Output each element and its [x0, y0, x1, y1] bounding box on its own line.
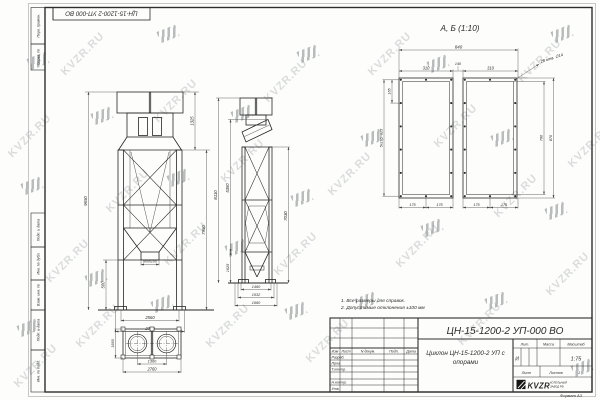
row-label-razrab: Разраб. [332, 356, 345, 360]
front-view-dim-labels: 9650 500 1325 7950 800х100 2560 2760 [83, 116, 206, 331]
dimension-label: 840 [455, 44, 463, 49]
mass-label: Масса [543, 343, 554, 347]
side-view [228, 98, 288, 283]
scale-value: 1:75 [571, 357, 583, 363]
side-view-dim-labels: 8110 5350 1625 7030 1460 1532 1660 [213, 183, 288, 305]
format-note: Формат А3 [560, 393, 583, 398]
row-label-nkontr: Н.контр. [332, 381, 347, 385]
dimension-label: 800х100 [143, 260, 157, 264]
dimension-label: 7950 [201, 225, 206, 235]
margin-label: Инв. № дубл. [37, 252, 41, 274]
logo-sub1: КОТЕЛЬНЫЙ [550, 381, 567, 385]
row-label-tkontr: Т.контр. [332, 368, 347, 372]
drawing-title-line1: Циклон ЦН-15-1200-2 УП с [426, 350, 505, 357]
sheets-value: 1 [578, 370, 580, 375]
doc-number: ЦН-15-1200-2 УП-000 ВО [447, 326, 564, 337]
col-header-list: Лист [340, 350, 350, 354]
kvzr-logo: KVZR КОТЕЛЬНЫЙ ЗАВОД РФ [517, 380, 567, 391]
detail-view-dimensions [383, 49, 556, 209]
note-line: 2. Допустимые отклонения ±100 мм [340, 305, 425, 311]
detail-view: А, Б (1:10) [379, 24, 564, 209]
dimension-label: 7030 [283, 211, 288, 221]
col-header-doc: N докум. [361, 350, 376, 354]
dimension-label: 175 [409, 203, 416, 207]
sheet-label: Лист [521, 371, 532, 375]
margin-label: Подп. и дата [37, 319, 41, 342]
detail-view-title: А, Б (1:10) [439, 24, 479, 33]
dimension-label: 870 [549, 134, 553, 141]
dimension-label: 175 [501, 203, 508, 207]
title-block: ЦН-15-1200-2 УП-000 ВО Циклон ЦН-15-1200… [330, 318, 592, 398]
margin-label: Подп. и дата [37, 219, 41, 242]
margin-label: Взам. инв. № [37, 284, 41, 306]
sheets-label: Листов [548, 371, 563, 375]
dimension-label: 1460 [252, 285, 261, 289]
margin-label: Справ. № [37, 49, 41, 65]
dimension-label: 1532 [252, 293, 261, 297]
detail-view-dim-labels: 840 310 140 310 28 отв. ∅14 165 5х165=82… [379, 44, 564, 207]
col-header-izm: Изм [332, 350, 339, 354]
logo-sub2: ЗАВОД РФ [550, 384, 565, 388]
dimension-label: 500 [100, 281, 105, 289]
engineering-drawing: { "watermark": { "text": "KVZR.RU" }, "s… [0, 0, 600, 400]
col-header-data: Дата [405, 350, 415, 354]
bolt-holes [400, 79, 517, 198]
drawing-canvas: Перв. примен. Справ. № Подп. и дата Инв.… [0, 0, 600, 400]
holes-callout: 28 отв. ∅14 [539, 52, 564, 65]
row-label-utv: Утв. [332, 387, 340, 391]
dimension-label: 1325 [189, 116, 194, 126]
dimension-label: 175 [473, 203, 480, 207]
dimension-label: 1660 [111, 338, 115, 347]
margin-label: Перв. примен. [37, 14, 41, 38]
logo-name: KVZR [528, 381, 550, 390]
dimension-label: 790 [539, 134, 543, 141]
plan-view [121, 327, 181, 359]
notes: 1. Все размеры для справок. 2. Допустимы… [340, 298, 425, 311]
lit-label: Лит. [520, 343, 530, 347]
front-view [98, 92, 214, 310]
dimension-label: 175 [436, 203, 443, 207]
row-label-prov: Пров. [332, 362, 341, 366]
margin-labels: Перв. примен. Справ. № Подп. и дата Инв.… [37, 14, 41, 382]
dimension-label: 1625 [226, 263, 230, 272]
lit-value: И [515, 356, 519, 362]
margin-label: Инв. № подл. [37, 360, 41, 382]
note-line: 1. Все размеры для справок. [341, 298, 405, 304]
col-header-podp: Подп. [389, 350, 399, 354]
dimension-label: 1660 [252, 301, 261, 305]
corner-stamp: ЦН-15-1200-2 УП-000 ВО [53, 8, 150, 21]
drawing-frame [29, 4, 596, 397]
dimension-label: 2560 [144, 315, 155, 320]
dimension-label: 5х165=825 [379, 128, 383, 147]
dimension-label: 140 [455, 62, 462, 66]
dimension-label: 5350 [225, 183, 230, 193]
dimension-label: 310 [423, 65, 431, 70]
dimension-label: 165 [387, 87, 391, 94]
dimension-label: 1360 [148, 358, 157, 363]
dimension-label: 9650 [83, 196, 88, 206]
side-view-dimensions [216, 98, 290, 307]
dimension-label: 8110 [213, 190, 218, 200]
drawing-title-line2: опорами [453, 359, 479, 366]
dimension-label: 2760 [146, 366, 157, 371]
dimension-label: 310 [487, 65, 495, 70]
scale-label: Масштаб [567, 343, 585, 347]
corner-stamp-number: ЦН-15-1200-2 УП-000 ВО [65, 10, 137, 17]
